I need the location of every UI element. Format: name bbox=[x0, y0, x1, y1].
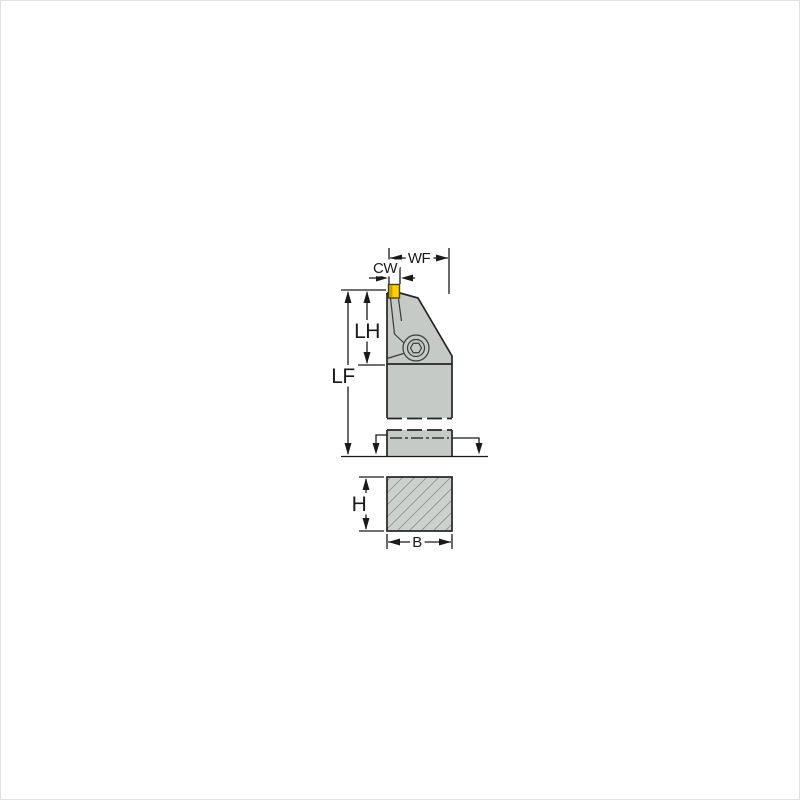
leader-arrow-left bbox=[373, 443, 380, 455]
h-arrow-top bbox=[363, 478, 370, 490]
lh-arrow-top bbox=[364, 291, 371, 303]
tool-holder-drawing: WF CW LH LF H B bbox=[1, 1, 800, 801]
cw-arrow-right bbox=[401, 275, 413, 282]
shank-cross-section bbox=[387, 477, 452, 531]
b-arrow-right bbox=[439, 539, 451, 546]
drawing-page: WF CW LH LF H B bbox=[0, 0, 800, 800]
tool-side-view bbox=[387, 285, 452, 457]
insert-shading bbox=[389, 285, 392, 297]
leader-arrow-right bbox=[476, 443, 483, 455]
b-arrow-left bbox=[388, 539, 400, 546]
label-cw: CW bbox=[373, 260, 398, 277]
shank-upper bbox=[387, 364, 452, 418]
lf-arrow-bottom bbox=[345, 443, 352, 455]
section-hatch bbox=[387, 477, 452, 531]
label-lh: LH bbox=[354, 320, 380, 343]
label-lf: LF bbox=[331, 365, 355, 388]
shank-lower bbox=[387, 430, 452, 456]
label-h: H bbox=[352, 493, 367, 516]
label-b: B bbox=[412, 534, 422, 551]
cutting-insert bbox=[389, 285, 400, 299]
h-arrow-bottom bbox=[363, 518, 370, 530]
lh-arrow-bottom bbox=[364, 352, 371, 364]
lf-arrow-top bbox=[345, 291, 352, 303]
wf-arrow-right bbox=[436, 255, 448, 262]
label-wf: WF bbox=[408, 250, 431, 267]
tool-head bbox=[387, 293, 452, 364]
